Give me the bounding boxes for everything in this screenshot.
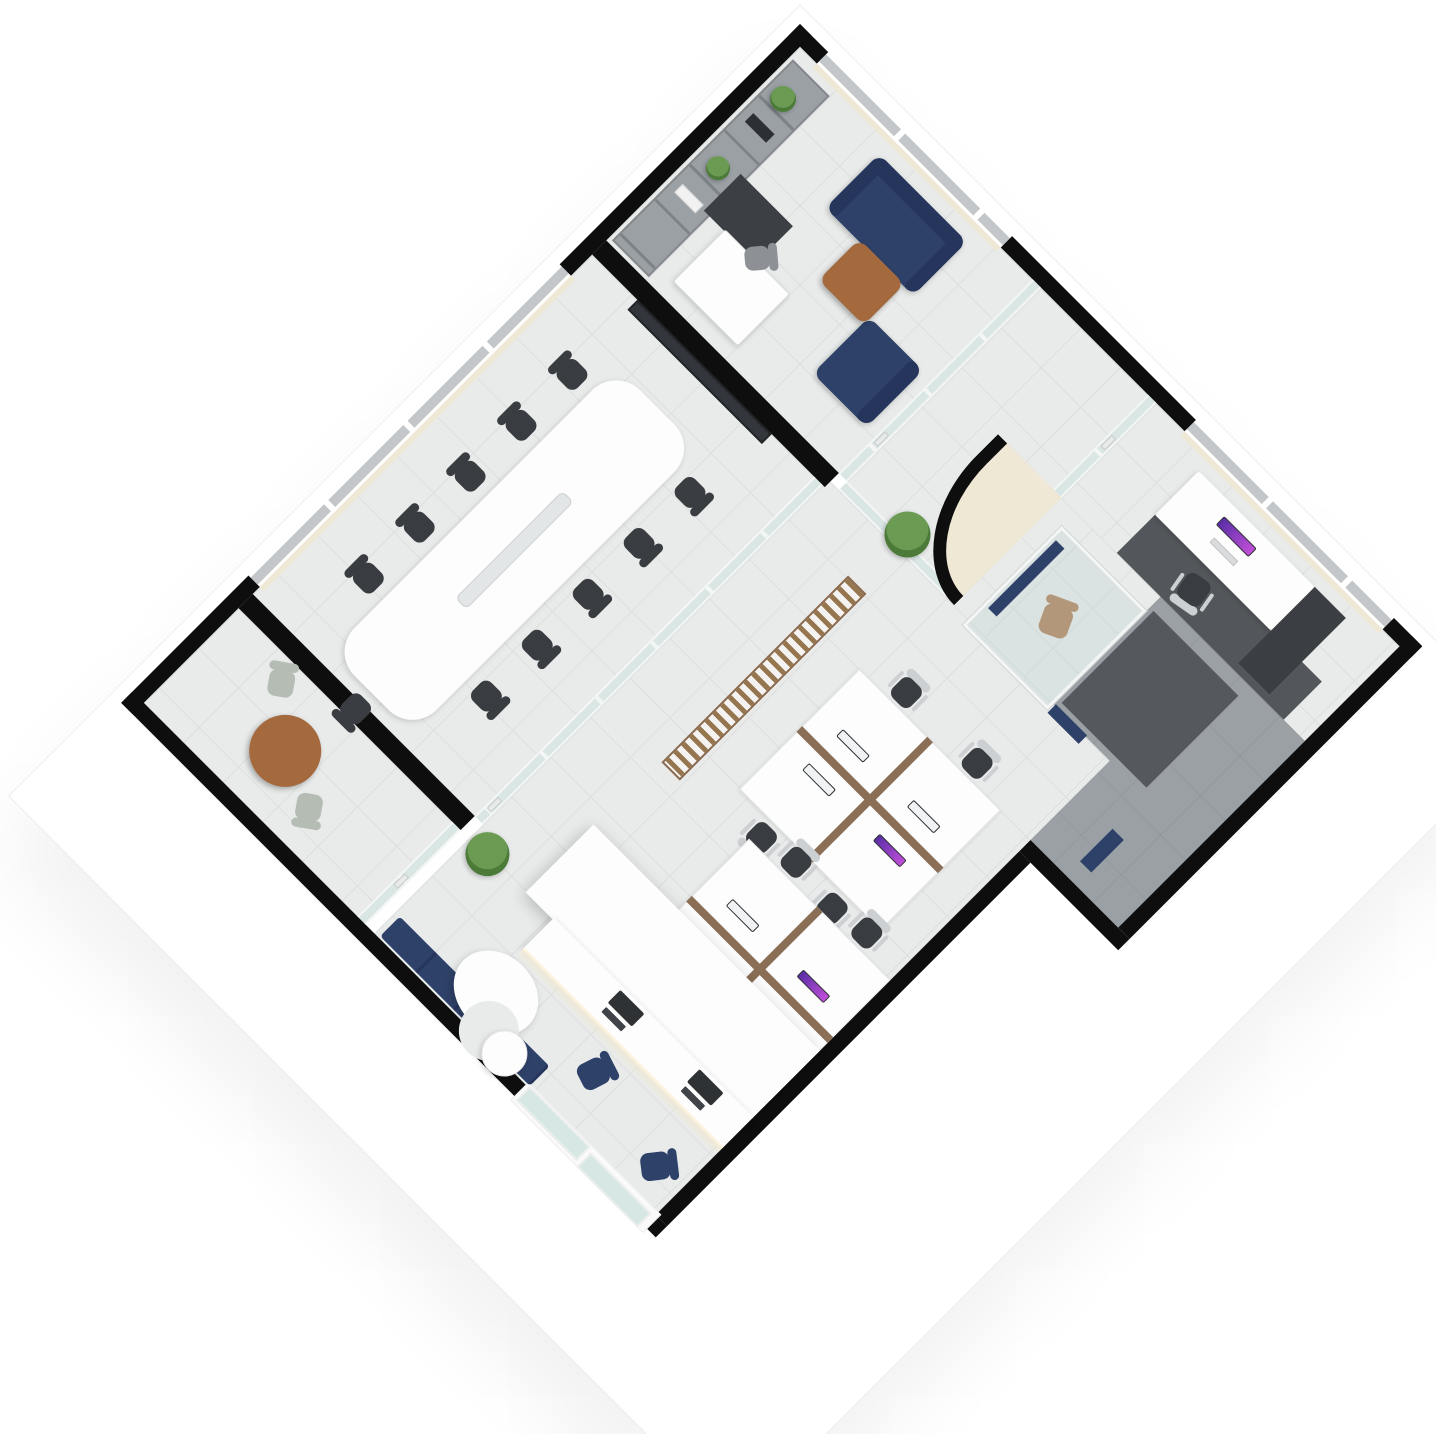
meeting-chair-b	[286, 787, 332, 831]
guest-chair-b	[635, 1143, 680, 1190]
meeting-chair-a	[259, 659, 305, 703]
floorplan-stage	[0, 0, 1436, 1434]
office-floorplan	[121, 24, 1422, 1325]
lounge-task-chair	[740, 238, 779, 279]
